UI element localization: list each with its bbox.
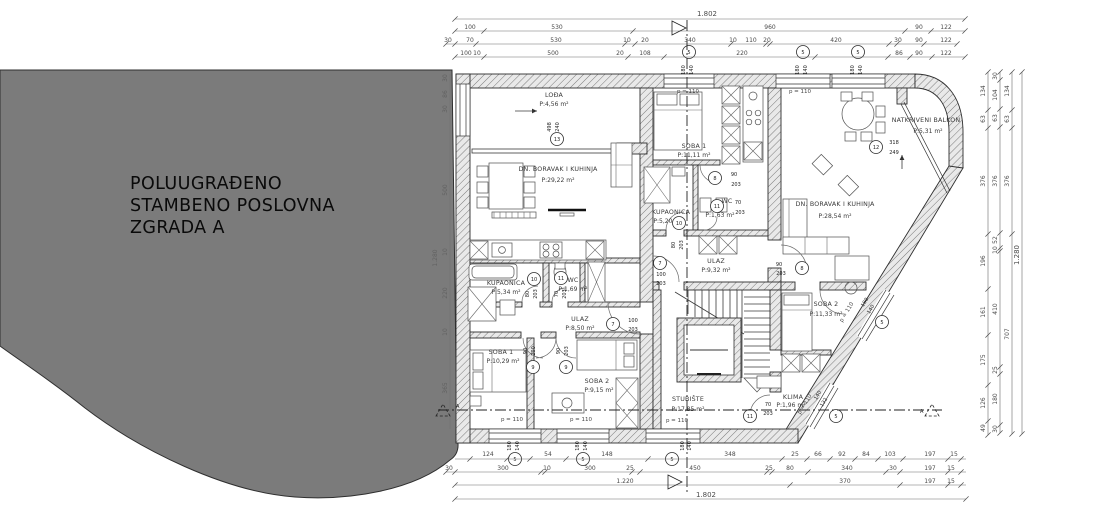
marker-7: 7 (658, 261, 661, 267)
door-height: 200 (531, 346, 537, 356)
window-bottom-2 (557, 429, 609, 443)
marker-11: 11 (558, 276, 564, 282)
site-label-line1: POLUUGRAĐENO (130, 174, 282, 194)
dim: 92 (838, 451, 846, 458)
dim: 348 (724, 451, 736, 458)
parapet-label: p = 110 (677, 89, 700, 95)
parapet-label: p = 110 (789, 89, 812, 95)
dim: 134 (980, 85, 987, 97)
room-soba1-left: SOBA 1 (489, 349, 514, 356)
dim: 10 (729, 37, 737, 44)
dim: 450 (689, 465, 701, 472)
opening-width: 498 (547, 122, 553, 132)
room-klima: KLIMA (783, 394, 804, 401)
klima-unit (757, 376, 781, 388)
door-width: 90 (776, 262, 782, 268)
room-ulaz-mid: ULAZ (707, 258, 725, 265)
marker-8: 8 (800, 266, 803, 272)
opening-width: 180 (850, 65, 856, 75)
opening-width: 318 (889, 140, 899, 146)
dim: 86 (442, 90, 449, 98)
door-height: 203 (731, 182, 741, 188)
dim: 30 (992, 425, 999, 433)
dim: 90 (915, 24, 923, 31)
marker-11: 11 (714, 204, 720, 210)
dim: 960 (764, 24, 776, 31)
dim: 15 (950, 451, 958, 458)
opening-height: 240 (555, 122, 561, 132)
opening-height: 140 (858, 65, 864, 75)
room-lodja: LOĐA (545, 92, 564, 99)
dim: 180 (992, 393, 999, 405)
furniture-middle-apartment (644, 86, 763, 254)
opening-width: 180 (680, 441, 686, 451)
dim: 52 (992, 236, 999, 244)
door-height: 203 (562, 289, 568, 299)
bed (654, 92, 702, 150)
desk (835, 256, 869, 280)
staircase (675, 290, 770, 392)
area-ulaz-mid: P:9,32 m² (701, 267, 731, 274)
nightstand (470, 396, 481, 406)
parapet-label: p = 110 (666, 418, 689, 424)
dim: 15 (947, 465, 955, 472)
window-bottom-3 (646, 429, 700, 443)
dim-total-bottom: 1.802 (696, 491, 716, 499)
opening-width: 180 (681, 65, 687, 75)
site-parcel-shape (0, 70, 458, 498)
door-height: 203 (628, 327, 638, 333)
dim: 300 (584, 465, 596, 472)
dimensions-bottom: 124 54 148 348 25 66 92 84 103 197 15 30… (443, 451, 968, 502)
dim: 10 (543, 465, 551, 472)
section-triangle-top (672, 21, 686, 35)
dim: 86 (895, 50, 903, 57)
door-width: 100 (628, 318, 638, 324)
dim: 122 (940, 50, 952, 57)
wardrobe (616, 378, 638, 428)
dim: 10 (992, 246, 999, 254)
dim: 220 (736, 50, 748, 57)
marker-8: 8 (713, 176, 716, 182)
dim: 90 (915, 37, 923, 44)
room-soba2-right: SOBA 2 (814, 301, 839, 308)
window-bottom-1 (489, 429, 541, 443)
dim: 30 (894, 37, 902, 44)
area-soba1-mid: P:11,11 m² (678, 152, 712, 159)
dim: 196 (980, 255, 987, 267)
door-height: 203 (656, 281, 666, 287)
dim: 126 (980, 397, 987, 409)
opening-width: 180 (507, 441, 513, 451)
section-label-right: A (920, 409, 924, 415)
dim: 25 (791, 451, 799, 458)
dim: 30 (444, 37, 452, 44)
dim-total-left: 1.280 (432, 249, 439, 266)
dim: 100 (464, 24, 476, 31)
opening-height: 140 (689, 65, 695, 75)
washbasin (672, 167, 685, 176)
opening-height: 140 (687, 441, 693, 451)
dim: 54 (544, 451, 552, 458)
door-width: 100 (656, 272, 666, 278)
door-width: 70 (554, 291, 560, 297)
opening-height: 249 (889, 150, 899, 156)
window-top-3 (832, 74, 885, 88)
marker-9: 9 (564, 365, 567, 371)
dim: 220 (442, 287, 449, 299)
dim: 30 (442, 105, 449, 113)
marker-10: 10 (676, 221, 682, 227)
area-soba2-left: P:9,15 m² (584, 387, 614, 394)
room-wc-left: WC (567, 277, 578, 284)
dim: 30 (889, 465, 897, 472)
dim: 340 (684, 37, 696, 44)
dim: 175 (980, 354, 987, 366)
bed (577, 340, 637, 370)
marker-10: 10 (531, 277, 537, 283)
door-width: 80 (525, 291, 531, 297)
room-stubiste: STUBIŠTE (672, 394, 704, 403)
parapet-label: p = 110 (501, 417, 524, 423)
area-balkon: P:5,31 m² (913, 128, 943, 135)
dim: 20 (641, 37, 649, 44)
site-label-line2: STAMBENO POSLOVNA (130, 196, 335, 216)
marker-5: 5 (581, 457, 584, 463)
marker-5: 5 (856, 50, 859, 56)
dim: 410 (992, 303, 999, 315)
dim: 500 (547, 50, 559, 57)
bed (782, 293, 812, 351)
marker-5: 5 (687, 50, 690, 56)
dim: 365 (442, 382, 449, 394)
dim: 15 (947, 478, 955, 485)
section-label-left: A (456, 404, 460, 410)
dim: 25 (765, 465, 773, 472)
dim: 20 (616, 50, 624, 57)
door-height: 203 (763, 411, 773, 417)
dim: 10 (623, 37, 631, 44)
door-width: 70 (765, 402, 771, 408)
window-top-2 (776, 74, 830, 88)
door-width: 70 (735, 200, 741, 206)
marker-5: 5 (670, 457, 673, 463)
dim: 30 (992, 72, 999, 80)
dim: 108 (639, 50, 651, 57)
site-parcel: POLUUGRAĐENO STAMBENO POSLOVNA ZGRADA A (0, 70, 458, 498)
dim: 63 (1004, 115, 1011, 123)
dim: 30 (442, 74, 449, 82)
section-triangle-bottom (668, 475, 682, 489)
dim: 100 (460, 50, 472, 57)
room-dnevni-left: DN. BORAVAK I KUHINJA (518, 166, 598, 173)
dim: 197 (924, 478, 936, 485)
opening-height: 140 (803, 65, 809, 75)
area-soba2-right: P:11,33 m² (810, 311, 844, 318)
dim: 30 (445, 465, 453, 472)
dim: 148 (601, 451, 613, 458)
dim: 25 (626, 465, 634, 472)
opening-height: 140 (583, 441, 589, 451)
dim: 49 (980, 424, 987, 432)
dim: 84 (862, 451, 870, 458)
door-width: 90 (523, 348, 529, 354)
dim: 530 (550, 37, 562, 44)
door-height: 203 (533, 289, 539, 299)
parapet-label: p = 110 (570, 417, 593, 423)
window-top-1 (664, 74, 714, 88)
toilet (700, 198, 711, 212)
dim: 340 (841, 465, 853, 472)
site-label-line3: ZGRADA A (130, 218, 225, 238)
dim: 707 (1004, 328, 1011, 340)
dim: 63 (980, 115, 987, 123)
marker-5: 5 (513, 457, 516, 463)
dim: 10 (442, 328, 449, 336)
room-dnevni-right: DN. BORAVAK I KUHINJA (795, 201, 875, 208)
dim: 134 (1004, 85, 1011, 97)
armchair (838, 175, 859, 196)
dim: 300 (497, 465, 509, 472)
door-width: 90 (731, 172, 737, 178)
area-ulaz-left: P:8,50 m² (565, 325, 595, 332)
bed (470, 350, 526, 392)
bathtub (469, 264, 517, 280)
dim: 376 (980, 175, 987, 187)
dim: 376 (992, 175, 999, 187)
room-balkon: NATKRIVENI BALKON (892, 117, 961, 124)
area-dnevni-left: P:29,22 m² (542, 177, 576, 184)
dim: 10 (442, 248, 449, 256)
dim: 124 (482, 451, 494, 458)
dim: 122 (940, 24, 952, 31)
dim-total-top: 1.802 (697, 10, 717, 18)
marker-11: 11 (747, 414, 753, 420)
dim: 370 (839, 478, 851, 485)
dim: 500 (442, 184, 449, 196)
floorplan-drawing: POLUUGRAĐENO STAMBENO POSLOVNA ZGRADA A (0, 0, 1114, 511)
door-height: 203 (564, 346, 570, 356)
door-height: 203 (776, 271, 786, 277)
armchair (812, 154, 833, 175)
opening-width: 180 (575, 441, 581, 451)
door-width: 80 (671, 242, 677, 248)
area-dnevni-right: P:28,54 m² (819, 213, 853, 220)
door-width: 90 (556, 348, 562, 354)
room-soba2-left: SOBA 2 (585, 378, 610, 385)
dimensions-top: 1.802 100 530 960 90 122 30 70 530 10 20… (443, 10, 967, 60)
area-soba1-left: P:10,29 m² (487, 358, 521, 365)
dim: 122 (940, 37, 952, 44)
dim: 20 (763, 37, 771, 44)
dim: 104 (992, 89, 999, 101)
round-table (842, 98, 874, 130)
dim: 70 (466, 37, 474, 44)
dim: 90 (915, 50, 923, 57)
opening-height: 140 (515, 441, 521, 451)
dim: 10 (473, 50, 481, 57)
dim: 66 (814, 451, 822, 458)
marker-9: 9 (531, 365, 534, 371)
opening-width: 180 (795, 65, 801, 75)
dimensions-right: 134 63 376 196 161 175 126 49 30 104 63 … (980, 69, 1025, 437)
dim: 197 (924, 465, 936, 472)
dim: 25 (992, 366, 999, 374)
dim: 420 (830, 37, 842, 44)
dim-total-right: 1.280 (1013, 245, 1021, 265)
dim: 376 (1004, 175, 1011, 187)
dim: 80 (786, 465, 794, 472)
marker-5: 5 (880, 320, 883, 326)
dim: 63 (992, 114, 999, 122)
area-wc-mid: P:1,63 m² (705, 212, 735, 219)
door-height: 203 (679, 240, 685, 250)
floorplan-page: POLUUGRAĐENO STAMBENO POSLOVNA ZGRADA A (0, 0, 1114, 511)
dim: 1.220 (616, 478, 633, 485)
marker-7: 7 (611, 322, 614, 328)
room-kupaonica-left: KUPAONICA (487, 280, 526, 287)
marker-5: 5 (834, 414, 837, 420)
dim: 161 (980, 306, 987, 318)
marker-12: 12 (873, 145, 879, 151)
tv-bench (492, 212, 536, 218)
door-height: 203 (735, 210, 745, 216)
window-left (456, 84, 470, 136)
room-kupaonica-mid: KUPAONICA (652, 209, 691, 216)
area-kupaonica-left: P:5,34 m² (491, 289, 521, 296)
dim: 110 (745, 37, 757, 44)
washing-machine (500, 300, 515, 315)
marker-13: 13 (554, 137, 560, 143)
dim: 103 (884, 451, 896, 458)
marker-5: 5 (801, 50, 804, 56)
area-lodja: P:4,56 m² (539, 101, 569, 108)
area-stubiste: P:17,85 m² (672, 406, 706, 413)
room-ulaz-left: ULAZ (571, 316, 589, 323)
dim: 197 (924, 451, 936, 458)
dim: 530 (551, 24, 563, 31)
room-soba1-mid: SOBA 1 (682, 143, 707, 150)
